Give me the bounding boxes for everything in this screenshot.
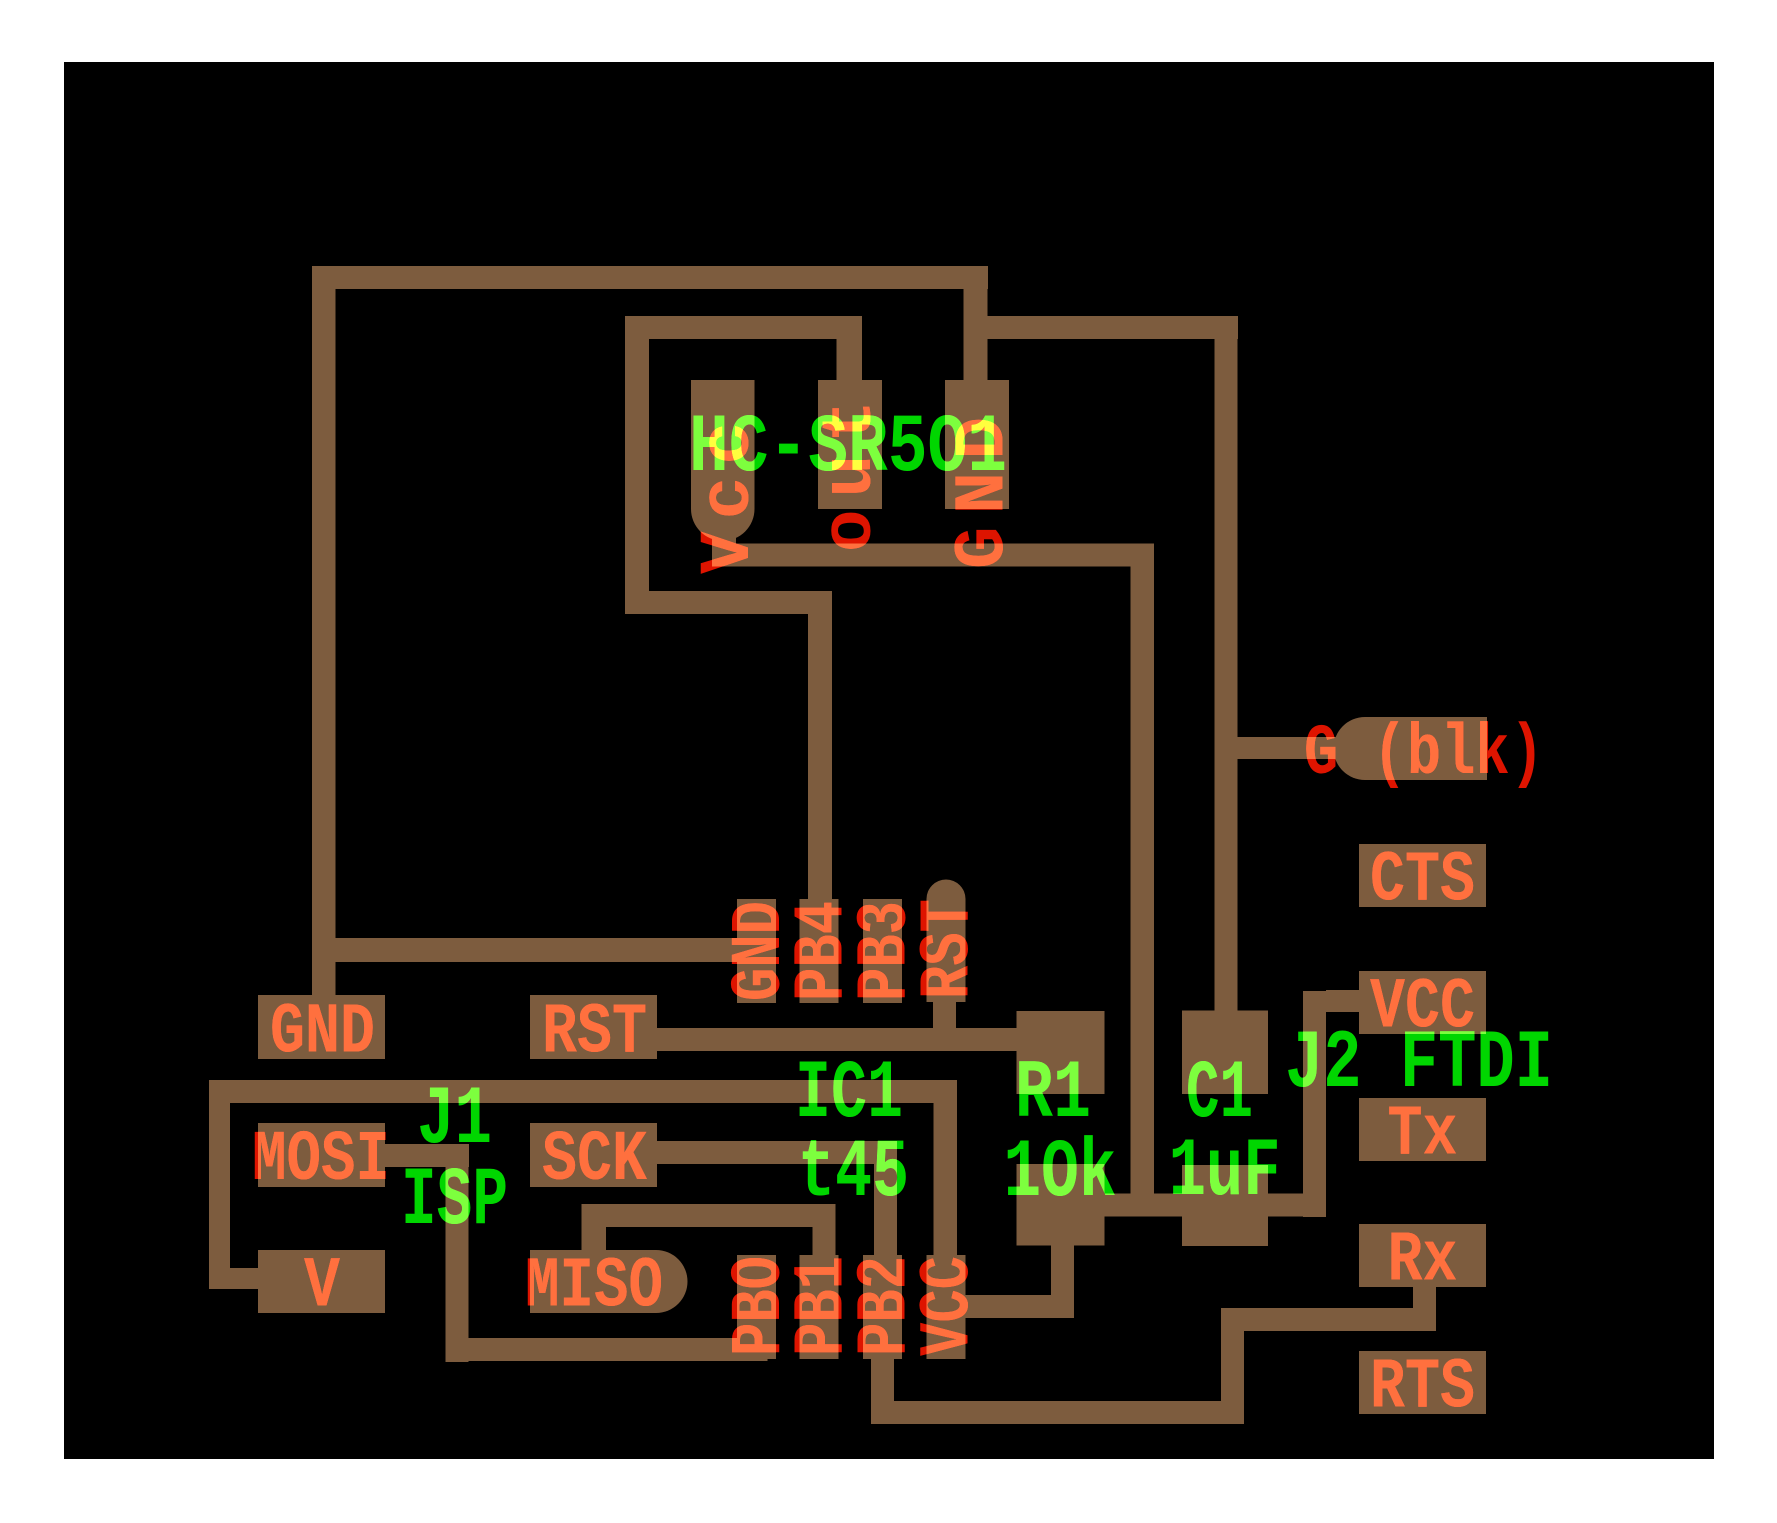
svg-text:GND: GND [270,994,375,1074]
svg-text:1Ok: 1Ok [1004,1126,1117,1220]
svg-text:t45: t45 [798,1126,909,1220]
svg-text:RTS: RTS [1370,1349,1475,1429]
svg-text:SCK: SCK [542,1121,647,1201]
svg-text:VCC: VCC [910,1256,990,1356]
svg-text:J2 FTDI: J2 FTDI [1285,1017,1553,1111]
svg-text:HC-SR5O1: HC-SR5O1 [689,401,1007,495]
svg-text:1uF: 1uF [1169,1125,1281,1219]
svg-text:MISO: MISO [525,1248,663,1328]
svg-text:V: V [304,1248,340,1328]
svg-text:MOSI: MOSI [252,1121,390,1201]
svg-text:J1: J1 [417,1073,492,1167]
svg-text:G (blk): G (blk) [1304,715,1544,795]
svg-text:Rx: Rx [1388,1222,1458,1302]
svg-text:ISP: ISP [401,1154,508,1248]
svg-text:RST: RST [910,899,990,999]
svg-text:RST: RST [542,994,647,1074]
svg-text:CTS: CTS [1370,842,1475,922]
